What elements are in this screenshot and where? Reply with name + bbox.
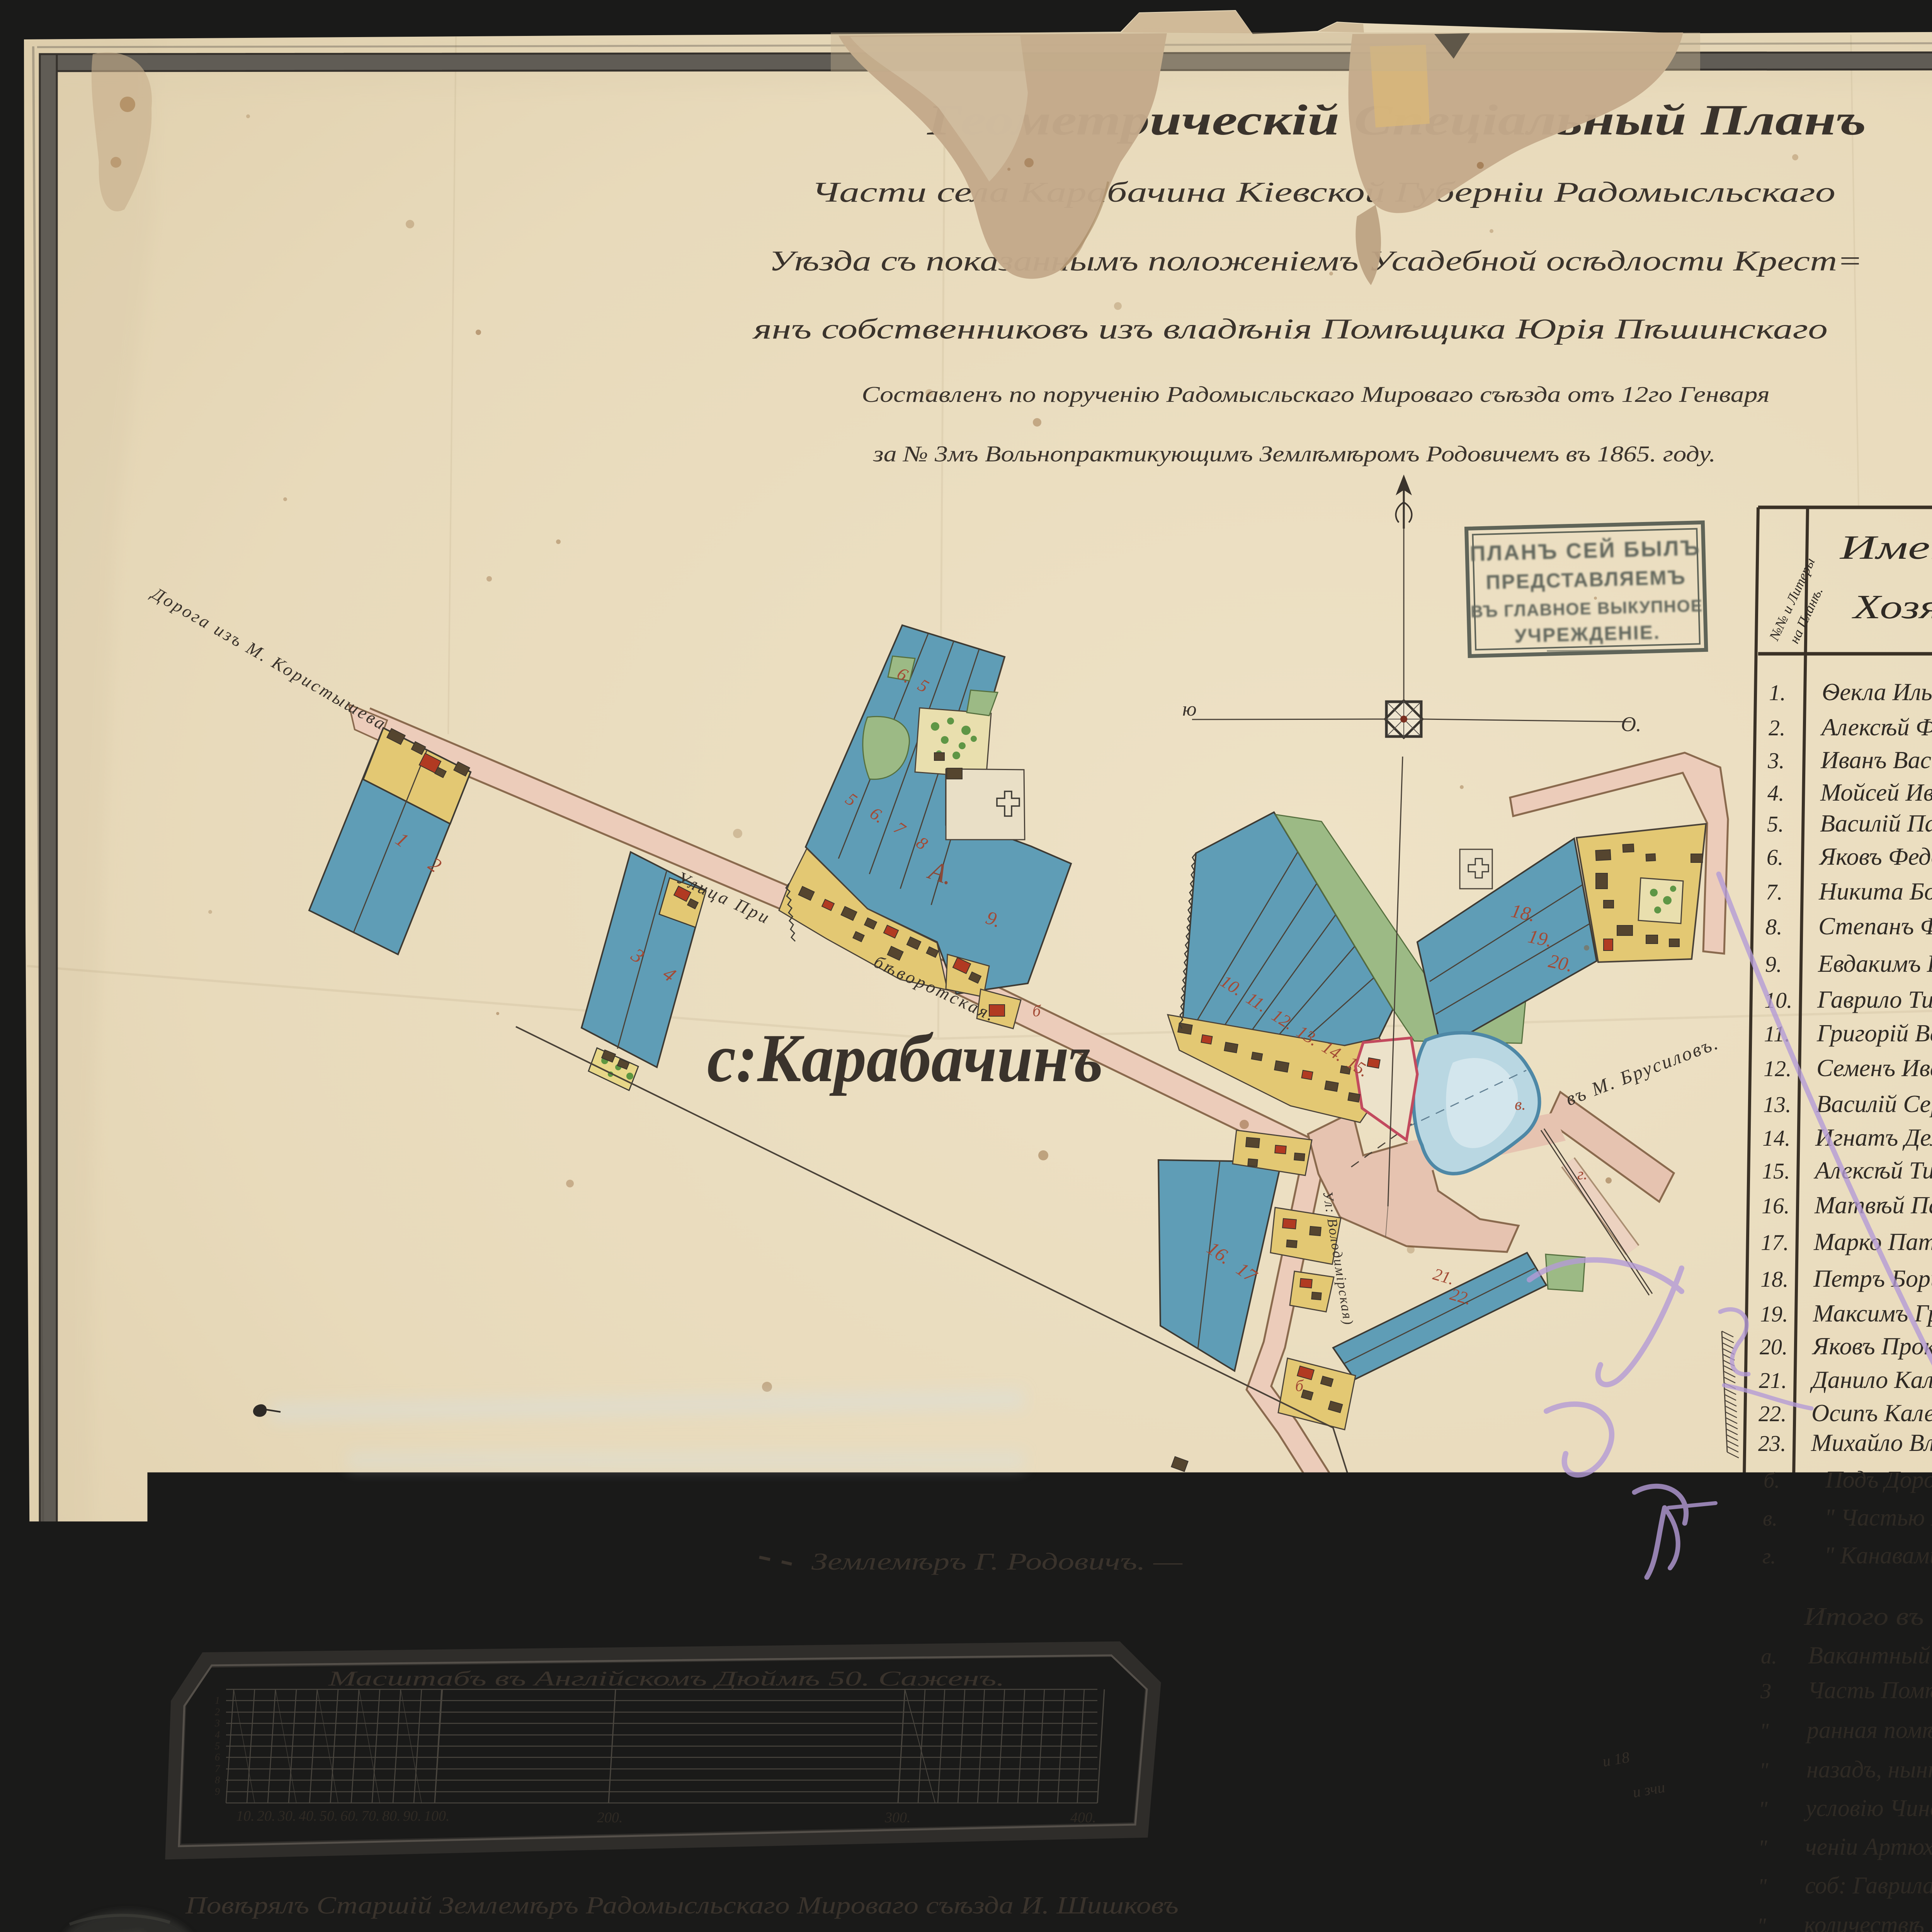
svg-text:Евдакимъ Еримовъ Стеценко: Евдакимъ Еримовъ Стеценко (1818, 950, 1932, 977)
svg-text:7: 7 (215, 1763, 220, 1774)
svg-text:Вакантный Участокъ: Вакантный Участокъ (1808, 1641, 1932, 1669)
svg-text:О.: О. (1621, 713, 1641, 736)
svg-text:6.: 6. (1767, 845, 1784, 870)
svg-text:б: б (1333, 1567, 1342, 1585)
svg-text:а.: а. (1761, 1645, 1777, 1668)
svg-text:1.: 1. (1769, 680, 1786, 705)
svg-text:7.: 7. (1766, 879, 1783, 905)
svg-text:З: З (1760, 1679, 1771, 1703)
svg-text:": " (1759, 1797, 1768, 1821)
svg-text:г.: г. (1762, 1544, 1776, 1568)
svg-text:Гаврило Тимоѳеевъ Бѣленко: Гаврило Тимоѳеевъ Бѣленко (1817, 986, 1932, 1013)
svg-text:3.: 3. (1767, 748, 1785, 773)
svg-text:Матвѣй Патаповъ Бабіенко: Матвѣй Патаповъ Бабіенко (1814, 1191, 1932, 1219)
svg-text:5.: 5. (1767, 811, 1784, 837)
svg-text:Ѳекла Ильина Фандралюкъ: Ѳекла Ильина Фандралюкъ (1822, 678, 1932, 706)
svg-text:Иванъ Васильевъ Карпенко: Иванъ Васильевъ Карпенко (1820, 746, 1932, 774)
svg-text:18.: 18. (1760, 1267, 1789, 1292)
svg-text:с:Карабачинъ: с:Карабачинъ (707, 1020, 1103, 1096)
svg-text:Алексѣй Тимоѳеевъ Стеценко: Алексѣй Тимоѳеевъ Стеценко (1813, 1156, 1932, 1184)
svg-text:80.: 80. (382, 1808, 401, 1824)
svg-text:количествѣ перемѣнена подъ: количествѣ перемѣнена подъ (1804, 1912, 1932, 1932)
svg-text:6: 6 (215, 1752, 220, 1763)
svg-text:90.: 90. (403, 1808, 422, 1824)
svg-text:70.: 70. (361, 1808, 380, 1824)
svg-text:янъ собственниковъ изъ владѣні: янъ собственниковъ изъ владѣнія Помѣщика… (752, 313, 1828, 345)
svg-text:": " (1759, 1759, 1769, 1782)
svg-text:Петръ Борисовъ Дударенко: Петръ Борисовъ Дударенко (1813, 1265, 1932, 1292)
svg-text:Василій Павловъ Бортничукъ: Василій Павловъ Бортничукъ (1820, 810, 1932, 837)
svg-text:3: 3 (214, 1718, 220, 1729)
svg-text:Мойсей Ивановъ Фандралюкъ: Мойсей Ивановъ Фандралюкъ (1820, 779, 1932, 806)
svg-text:20.: 20. (257, 1808, 276, 1824)
svg-text:ранная помѣщикомъ 12 л: ранная помѣщикомъ 12 лѣтъ (1805, 1717, 1932, 1743)
svg-text:": " (1760, 1719, 1769, 1743)
svg-text:Алексѣй Федоровъ Костюченко: Алексѣй Федоровъ Костюченко (1820, 713, 1932, 741)
svg-text:9: 9 (215, 1786, 220, 1797)
svg-text:за № 3мъ Вольнопрактикующимъ З: за № 3мъ Вольнопрактикующимъ Землѣмѣромъ… (873, 441, 1716, 466)
svg-text:в.: в. (1763, 1507, 1777, 1531)
svg-text:" Частью Пруда: " Частью Пруда (1825, 1505, 1932, 1531)
svg-text:8: 8 (215, 1774, 220, 1786)
svg-text:Яковъ Федоровъ Сидоренко: Яковъ Федоровъ Сидоренко (1818, 843, 1932, 870)
svg-text:8.: 8. (1765, 914, 1782, 939)
svg-text:15.: 15. (1762, 1158, 1790, 1184)
svg-text:Яковъ Прокоповъ Бѣленки: Яковъ Прокоповъ Бѣленки (1811, 1332, 1932, 1360)
svg-text:Уѣзда съ показаннымъ положеніе: Уѣзда съ показаннымъ положеніемъ Усадебн… (769, 245, 1862, 277)
svg-text:10.: 10. (236, 1808, 255, 1824)
svg-text:20.: 20. (1760, 1334, 1788, 1359)
svg-text:13.: 13. (1763, 1092, 1791, 1117)
svg-text:Подъ Дорогами: Подъ Дорогами (1825, 1467, 1932, 1493)
svg-text:б: б (1295, 1377, 1304, 1395)
svg-text:Имена и названія: Имена и названія (1840, 529, 1932, 566)
svg-text:19.: 19. (1760, 1301, 1788, 1327)
svg-text:1: 1 (215, 1695, 220, 1706)
svg-text:условію Чиновника особыхъ пору: условію Чиновника особыхъ пору- (1803, 1795, 1932, 1821)
svg-text:назадъ, нынѣ по добровольному: назадъ, нынѣ по добровольному (1806, 1757, 1932, 1783)
svg-text:5: 5 (215, 1740, 220, 1752)
svg-text:Часть Помѣщицкаго огорода отоб: Часть Помѣщицкаго огорода отоб= (1808, 1677, 1932, 1704)
svg-text:Данило Калениковъ Дударенко: Данило Калениковъ Дударенко (1810, 1366, 1932, 1393)
svg-text:16.: 16. (1762, 1193, 1790, 1218)
svg-text:60.: 60. (340, 1808, 359, 1824)
svg-text:ю: ю (1182, 698, 1197, 720)
svg-text:б.: б. (1764, 1469, 1780, 1493)
svg-text:Итого въ пользованіи Крестьянъ: Итого въ пользованіи Крестьянъ. (1804, 1602, 1932, 1631)
svg-text:в.: в. (1515, 1096, 1526, 1114)
svg-text:23.: 23. (1758, 1431, 1786, 1456)
svg-text:" Канавами на границахъ: " Канавами на границахъ (1824, 1543, 1932, 1569)
svg-text:": " (1758, 1836, 1767, 1860)
svg-text:Составленъ по порученію Радомы: Составленъ по порученію Радомысльскаго М… (862, 382, 1770, 407)
svg-text:ченіи Артюхова и Крестьянина: ченіи Артюхова и Крестьянина (1805, 1834, 1932, 1860)
svg-text:Землемѣръ Г. Родовичъ. —: Землемѣръ Г. Родовичъ. — (811, 1549, 1183, 1575)
svg-text:17.: 17. (1761, 1230, 1789, 1255)
svg-text:22.: 22. (1759, 1401, 1787, 1426)
svg-text:Осипъ Калениковъ Дударенко: Осипъ Калениковъ Дударенко (1811, 1399, 1932, 1427)
svg-text:б: б (1032, 1002, 1041, 1020)
svg-text:Повѣрялъ Старшій Землемѣръ Рад: Повѣрялъ Старшій Землемѣръ Радомысльскаг… (185, 1891, 1179, 1919)
svg-text:": " (1758, 1874, 1767, 1898)
svg-text:400.: 400. (1070, 1810, 1096, 1826)
svg-text:50.: 50. (320, 1808, 338, 1824)
svg-text:Степанъ Федоровъ Коденскій: Степанъ Федоровъ Коденскій (1818, 912, 1932, 940)
svg-text:Григорій Васильевъ Сидоренко: Григорій Васильевъ Сидоренко (1816, 1019, 1932, 1047)
svg-text:12.: 12. (1764, 1056, 1792, 1081)
svg-text:Части села Карабачина Кіевской: Части села Карабачина Кіевской Губерніи … (811, 177, 1835, 208)
svg-text:Хозяевъ и Угодій.: Хозяевъ и Угодій. (1852, 588, 1932, 626)
svg-text:9.: 9. (1765, 952, 1782, 977)
svg-text:300.: 300. (884, 1810, 911, 1826)
svg-text:Михайло Владимиръ Мартиненко: Михайло Владимиръ Мартиненко (1811, 1429, 1932, 1456)
svg-text:Василій Сергѣевъ Рыбчукъ: Василій Сергѣевъ Рыбчукъ (1816, 1090, 1932, 1117)
svg-text:Семенъ Ивановъ Фандралюкъ: Семенъ Ивановъ Фандралюкъ (1816, 1054, 1932, 1082)
svg-text:Никита Борисовъ Дударенко: Никита Борисовъ Дударенко (1818, 878, 1932, 905)
svg-text:100.: 100. (424, 1808, 450, 1824)
svg-text:Масштабъ въ Англійскомъ Дюй: Масштабъ въ Англійскомъ Дюймѣ 50. Саженъ… (328, 1667, 1005, 1690)
svg-text:200.: 200. (597, 1810, 623, 1826)
svg-text:14.: 14. (1762, 1126, 1791, 1151)
svg-text:4.: 4. (1767, 781, 1784, 806)
svg-text:4: 4 (215, 1729, 220, 1740)
svg-text:2.: 2. (1769, 715, 1786, 740)
svg-text:УЧРЕЖДЕНІЕ.: УЧРЕЖДЕНІЕ. (1514, 621, 1661, 647)
svg-text:": " (1757, 1914, 1766, 1932)
svg-text:30.: 30. (277, 1808, 296, 1824)
svg-text:21.: 21. (1759, 1368, 1787, 1393)
svg-text:2: 2 (215, 1706, 220, 1718)
svg-text:соб: Гаврила Бѣленко въ равном: соб: Гаврила Бѣленко въ равномъ (1805, 1872, 1932, 1899)
svg-text:г.: г. (1577, 1165, 1587, 1183)
svg-text:40.: 40. (299, 1808, 317, 1824)
